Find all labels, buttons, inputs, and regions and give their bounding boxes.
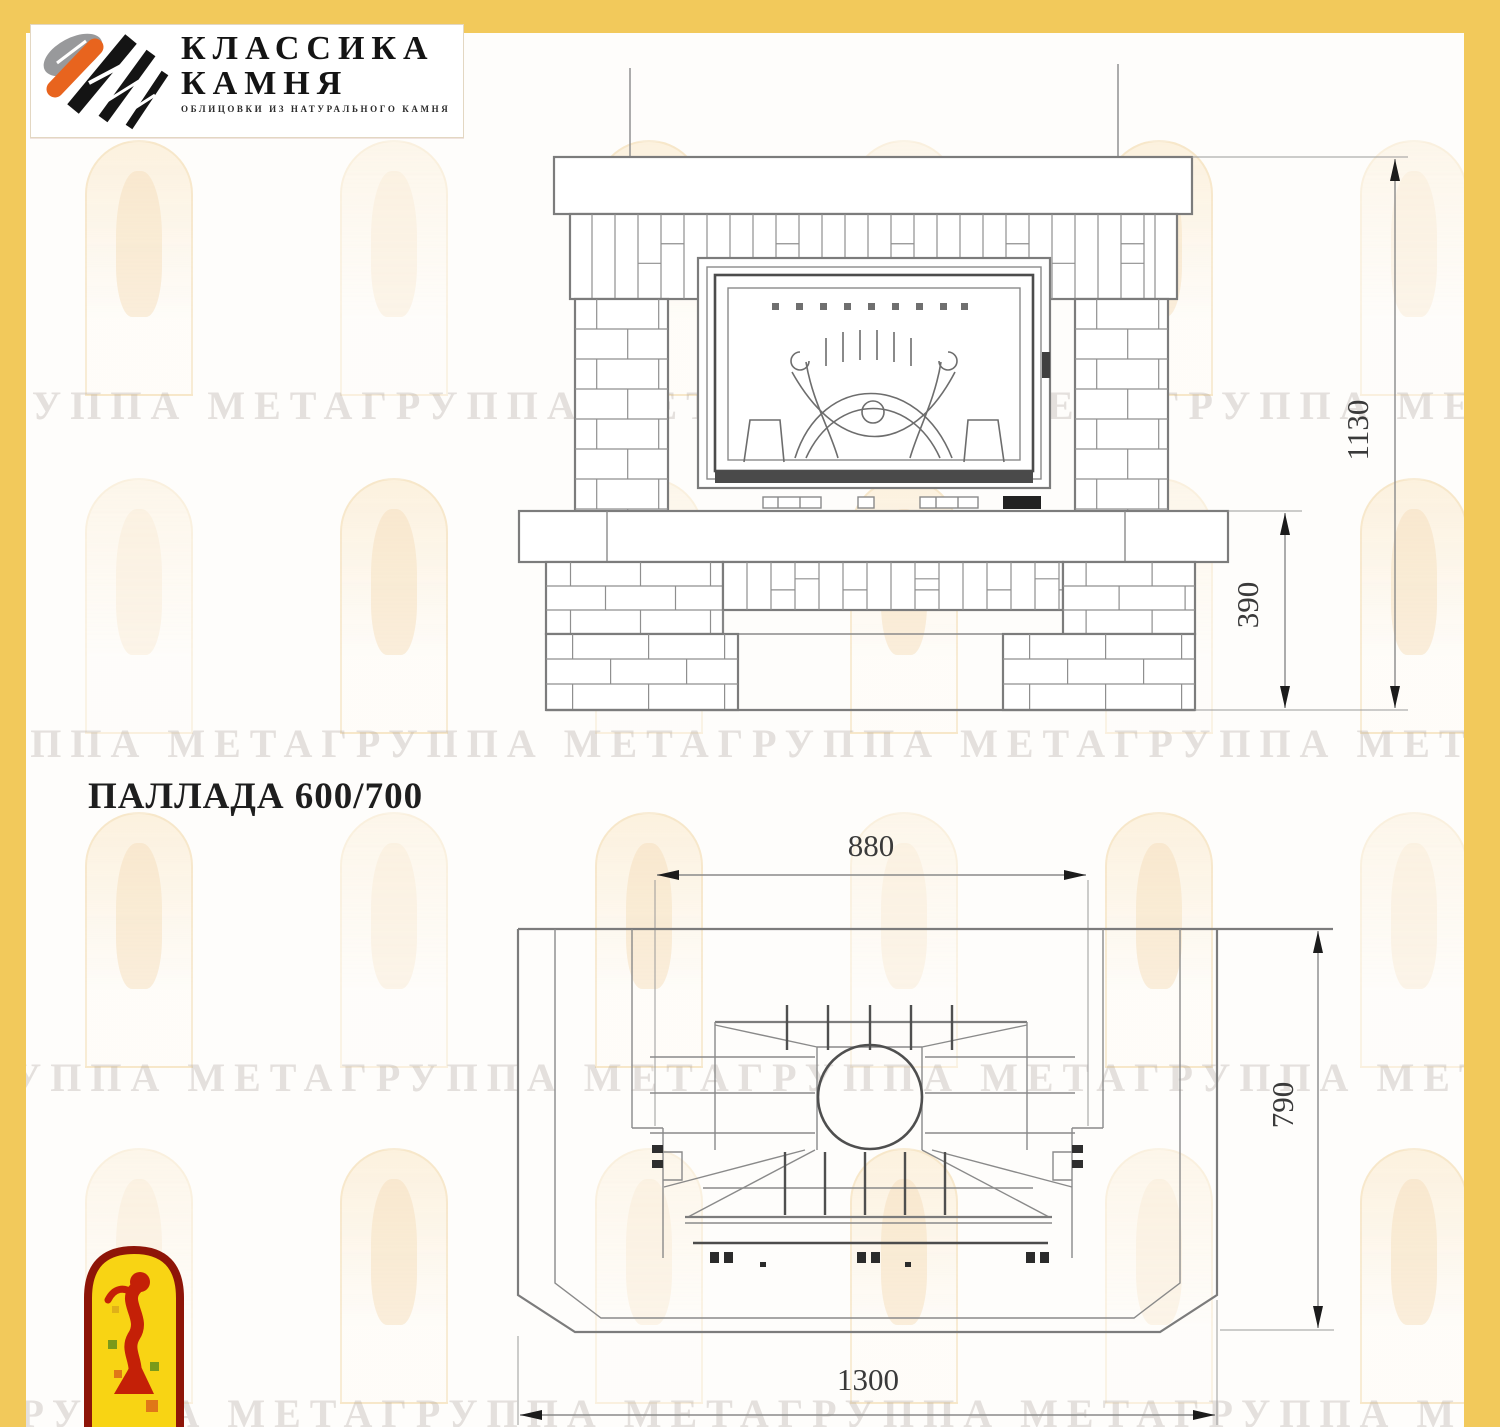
brand-name-line1: КЛАССИКА xyxy=(181,31,450,67)
brand-name-line2: КАМНЯ xyxy=(181,67,450,101)
insert-feet xyxy=(710,1252,1049,1267)
base-right-bricks xyxy=(1003,634,1195,710)
door-vents xyxy=(763,496,1041,509)
page: ГРУППА МЕТАГРУППА МЕТАГРУППА МЕТАГРУППА … xyxy=(0,0,1500,1427)
brand-tagline: ОБЛИЦОВКИ ИЗ НАТУРАЛЬНОГО КАМНЯ xyxy=(181,104,450,114)
front-view-drawing: 1130 390 xyxy=(519,64,1408,710)
dim-label-390: 390 xyxy=(1230,582,1265,629)
plan-outline xyxy=(518,929,1333,1332)
sub-hearth-band xyxy=(546,562,1195,634)
dim-depth-790: 790 xyxy=(1220,931,1334,1330)
hearth-shelf xyxy=(519,511,1228,562)
arch-firebird-logo xyxy=(84,1244,184,1427)
right-pillar-bricks xyxy=(1075,299,1168,512)
dim-firebox-width-880: 880 xyxy=(655,828,1088,1126)
side-ribs xyxy=(650,1057,1075,1133)
brand-logo: КЛАССИКА КАМНЯ ОБЛИЦОВКИ ИЗ НАТУРАЛЬНОГО… xyxy=(30,24,464,138)
dim-front-height-1130: 1130 xyxy=(1192,157,1408,710)
dim-label-790: 790 xyxy=(1265,1082,1300,1129)
fireplace-technical-drawing: 1130 390 880 xyxy=(0,0,1500,1427)
dim-hearth-height-390: 390 xyxy=(1228,511,1302,708)
brand-brush-icon xyxy=(31,25,181,133)
model-title: ПАЛЛАДА 600/700 xyxy=(88,775,423,818)
insert-top-ticks xyxy=(787,1005,952,1050)
plan-view-drawing: 880 xyxy=(518,828,1334,1425)
grate-bars xyxy=(785,1152,945,1215)
dim-label-1130: 1130 xyxy=(1340,400,1375,461)
dim-label-1300: 1300 xyxy=(837,1362,899,1397)
door-handle xyxy=(1042,352,1050,378)
soldier-course-bottom xyxy=(723,562,1083,634)
plan-insert-body xyxy=(650,1005,1075,1267)
firebox-door xyxy=(698,258,1050,488)
left-pillar-bricks xyxy=(575,299,668,512)
base-left-bricks xyxy=(546,634,738,710)
dim-total-width-1300: 1300 xyxy=(518,1300,1217,1425)
dim-label-880: 880 xyxy=(848,828,895,863)
flue-circle xyxy=(818,1045,922,1149)
mantel-shelf xyxy=(554,157,1192,214)
ash-lip-strip xyxy=(715,471,1033,483)
insert-front-spread xyxy=(664,1150,1072,1267)
